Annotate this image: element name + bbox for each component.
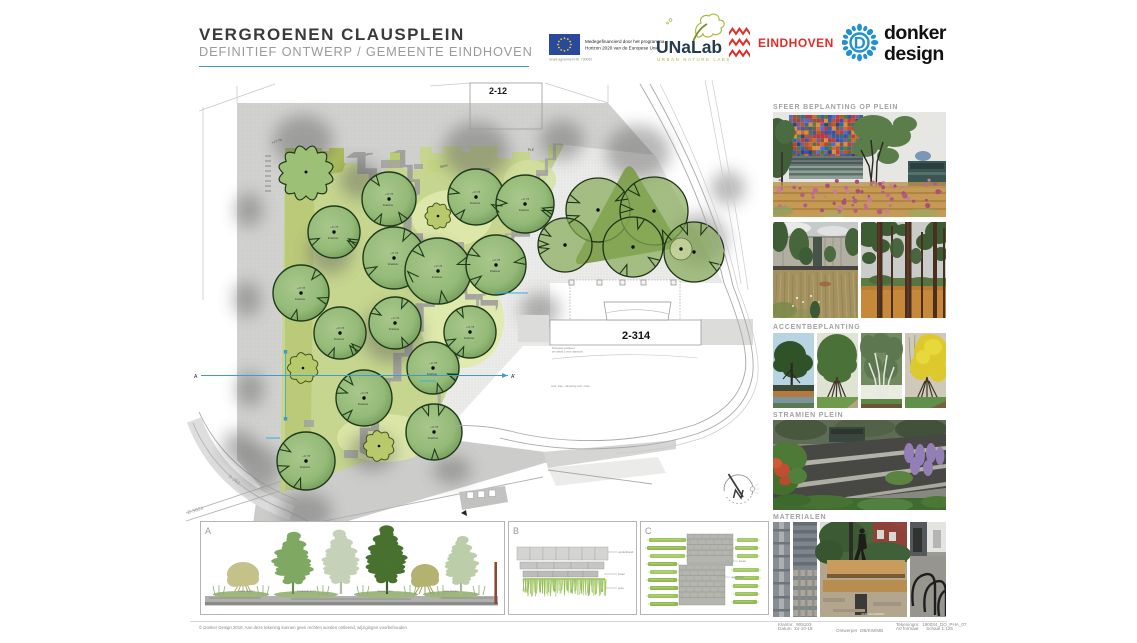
svg-text:graskeien: graskeien	[731, 575, 744, 579]
svg-text:+17.78: +17.78	[360, 391, 369, 395]
svg-text:vaste planten: vaste planten	[239, 589, 255, 593]
svg-text:bestaande boom: bestaande boom	[297, 589, 316, 593]
svg-text:+17.78: +17.78	[466, 325, 475, 329]
svg-text:A': A'	[511, 374, 515, 380]
svg-text:donker: donker	[884, 22, 947, 44]
svg-text:UNaLab: UNaLab	[656, 37, 722, 57]
svg-text:nieuwe boom: nieuwe boom	[377, 589, 392, 593]
svg-text:Fraxinus: Fraxinus	[464, 336, 475, 340]
svg-text:VAN GELDEREN: VAN GELDEREN	[861, 612, 884, 616]
svg-text:A: A	[205, 526, 211, 536]
svg-text:Fraxinus: Fraxinus	[490, 269, 501, 273]
svg-text:zie detail 5 voor aanzicht: zie detail 5 voor aanzicht	[552, 350, 583, 354]
svg-text:Fraxinus: Fraxinus	[428, 436, 439, 440]
svg-text:Grant agreement Nr. 730052: Grant agreement Nr. 730052	[549, 58, 592, 62]
svg-text:+17.78: +17.78	[302, 454, 311, 458]
svg-text:keien: keien	[618, 572, 626, 576]
svg-text:+17.78: +17.78	[521, 197, 530, 201]
svg-text:Fraxinus: Fraxinus	[358, 402, 369, 406]
svg-text:+17.78: +17.78	[472, 190, 481, 194]
svg-text:Fraxinus: Fraxinus	[388, 262, 399, 266]
svg-text:+17.78: +17.78	[336, 326, 345, 330]
svg-text:C: C	[645, 526, 652, 536]
svg-text:Fraxinus: Fraxinus	[334, 337, 345, 341]
svg-text:+17.78: +17.78	[430, 425, 439, 429]
svg-text:B: B	[513, 526, 519, 536]
svg-text:+17.78: +17.78	[385, 192, 394, 196]
svg-text:+17.78: +17.78	[390, 251, 399, 255]
svg-text:Horizon 2020 van de Europese U: Horizon 2020 van de Europese Unie	[585, 46, 660, 51]
svg-text:D 3624: D 3624	[187, 506, 204, 516]
svg-text:Fraxinus: Fraxinus	[383, 203, 394, 207]
svg-text:D: D	[854, 35, 866, 53]
svg-text:+17.78: +17.78	[297, 286, 306, 290]
svg-text:Fraxinus: Fraxinus	[470, 201, 481, 205]
svg-text:2-314: 2-314	[622, 330, 651, 342]
svg-text:Medegefinancierd door het prog: Medegefinancierd door het programma	[585, 39, 665, 44]
svg-text:A: A	[194, 374, 198, 380]
svg-text:EINDHOVEN: EINDHOVEN	[758, 36, 834, 50]
svg-text:design: design	[884, 43, 944, 65]
svg-text:+17.78: +17.78	[434, 264, 443, 268]
svg-text:Fraxinus: Fraxinus	[389, 327, 400, 331]
svg-text:Fraxinus: Fraxinus	[328, 236, 339, 240]
svg-text:voet. trap - afmeting conf. on: voet. trap - afmeting conf. ontw.	[551, 384, 590, 388]
svg-text:URBAN NATURE LABS: URBAN NATURE LABS	[657, 57, 731, 62]
svg-text:opsluitband: opsluitband	[618, 550, 634, 554]
svg-text:PLE: PLE	[528, 148, 534, 152]
svg-text:gras: gras	[618, 586, 624, 590]
svg-text:Fraxinus: Fraxinus	[519, 208, 530, 212]
svg-text:2-12: 2-12	[489, 86, 507, 96]
svg-text:+17.78: +17.78	[492, 258, 501, 262]
svg-text:+17.78: +17.78	[429, 361, 438, 365]
svg-text:keien: keien	[739, 559, 747, 563]
svg-text:Fraxinus: Fraxinus	[300, 465, 311, 469]
svg-text:Fraxinus: Fraxinus	[295, 297, 306, 301]
svg-text:Fraxinus: Fraxinus	[432, 275, 443, 279]
svg-text:vaste planten: vaste planten	[443, 589, 459, 593]
svg-text:+17.78: +17.78	[330, 225, 339, 229]
svg-text:+17.78: +17.78	[391, 316, 400, 320]
